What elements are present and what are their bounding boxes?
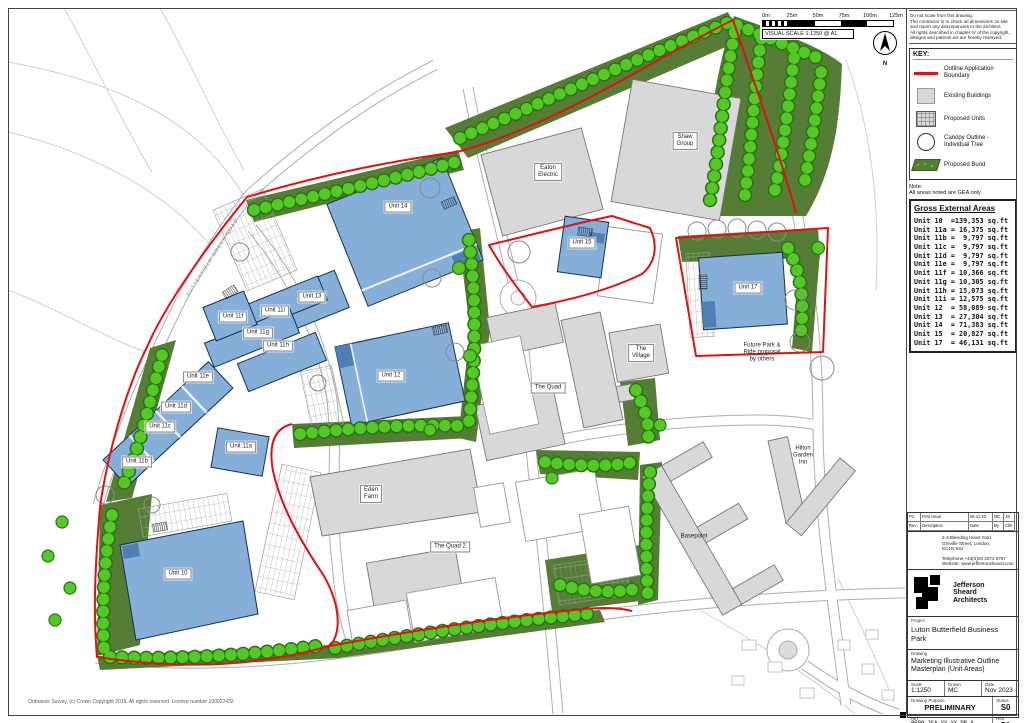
- drawing-title: Marketing Illustrative Outline Masterpla…: [908, 656, 1018, 681]
- rev-cell: MC: [993, 513, 1004, 522]
- areas-note-text: All areas noted are GEA only: [909, 190, 981, 196]
- key-item-label: Canopy Outline - Individual Tree: [944, 135, 989, 149]
- gea-row: Unit 13 = 27,304 sq.ft: [914, 313, 1012, 322]
- masterplan-map: [8, 8, 905, 714]
- revision-table: P1 First Issue 06.11.23 MC JS Rev Descri…: [908, 513, 1018, 532]
- key-item-existing: Existing Buildings: [913, 85, 1013, 108]
- date-cell: Date Nov 2023: [982, 681, 1018, 696]
- existing-building-swatch: [913, 88, 939, 104]
- rev-header-cell: Date: [969, 522, 993, 531]
- drawing-sheet: Unit 14 Unit 13 Unit 11i Unit 11f Unit 1…: [0, 0, 1024, 723]
- rev-cell: First Issue: [921, 513, 969, 522]
- key-item-tree: Canopy Outline - Individual Tree: [913, 131, 1013, 154]
- drawn-cell: Drawn MC: [945, 681, 982, 696]
- note-line: The contractor is to check all dimension…: [910, 19, 1016, 30]
- proposed-unit-swatch: [913, 111, 939, 127]
- tick-25: 25m: [787, 13, 798, 19]
- gea-row: Unit 11f = 10,366 sq.ft: [914, 269, 1012, 278]
- ref-rev-row: Ref 0689-JSA-XX-XX-DR-A-01220 Rev P1: [908, 715, 1018, 723]
- tick-125: 125m: [889, 13, 903, 19]
- gea-row: Unit 11d = 9,797 sq.ft: [914, 252, 1012, 261]
- drawn-value: MC: [945, 687, 981, 695]
- key-item-bund: Proposed Bund: [913, 154, 1013, 177]
- gea-row: Unit 11e = 9,797 sq.ft: [914, 260, 1012, 269]
- gea-title: Gross External Areas: [914, 204, 1012, 213]
- hilton-garden-inn-building: [768, 437, 855, 536]
- gea-row: Unit 11g = 10,305 sq.ft: [914, 278, 1012, 287]
- key-item-label: Proposed Units: [944, 116, 985, 123]
- gea-row: Unit 14 = 71,383 sq.ft: [914, 321, 1012, 330]
- gea-row: Unit 12 = 58,089 sq.ft: [914, 304, 1012, 313]
- key-item-boundary: Outline Application Boundary: [913, 62, 1013, 85]
- jefferson-sheard-logo-icon: [912, 575, 948, 611]
- unit-12-building: [335, 323, 465, 425]
- purpose-cell: Drawing Purpose PRELIMINARY: [908, 697, 993, 714]
- rev-cell: P1: [908, 513, 921, 522]
- gea-row: Unit 11c = 9,797 sq.ft: [914, 243, 1012, 252]
- scale-bar-blocks: [762, 20, 894, 27]
- address-line: EC1N 8SJ: [942, 546, 1014, 552]
- panel-divider: [906, 8, 907, 714]
- tick-0: 0m: [762, 13, 770, 19]
- north-arrow-icon: [872, 30, 898, 56]
- basepoint-building: [643, 442, 784, 616]
- tree-canopy-swatch: [913, 133, 939, 151]
- gea-row: Unit 17 = 46,131 sq.ft: [914, 339, 1012, 348]
- ref-cell: Ref 0689-JSA-XX-XX-DR-A-01220: [908, 715, 993, 723]
- key-item-label: Proposed Bund: [944, 162, 985, 169]
- gross-external-areas-table: Gross External Areas Unit 10 =139,353 sq…: [909, 199, 1017, 353]
- architect-name: Jefferson Sheard Architects: [953, 582, 987, 605]
- unit-11a-building: [211, 428, 269, 476]
- unit-17-building: [699, 252, 788, 330]
- unit-15-building: [557, 216, 608, 278]
- scale-drawn-date-row: Scale 1:1250 Drawn MC Date Nov 2023: [908, 681, 1018, 697]
- scale-value: 1:1250: [908, 687, 944, 695]
- areas-note: Note: All areas noted are GEA only: [909, 184, 1017, 196]
- os-copyright-text: Ordnance Survey, (c) Crown Copyright 201…: [28, 699, 234, 705]
- north-arrow: N: [870, 30, 900, 66]
- date-value: Nov 2023: [982, 687, 1018, 695]
- key-item-label: Existing Buildings: [944, 93, 991, 100]
- tick-75: 75m: [839, 13, 850, 19]
- tick-50: 50m: [813, 13, 824, 19]
- note-line: All rights described in chapter IV of th…: [910, 30, 1016, 41]
- scale-cell: Scale 1:1250: [908, 681, 945, 696]
- gea-row: Unit 11b = 9,797 sq.ft: [914, 234, 1012, 243]
- rev-header-cell: Rev: [908, 522, 921, 531]
- right-panel: Do not scale from this drawing. The cont…: [909, 10, 1017, 353]
- purpose-value: PRELIMINARY: [908, 703, 992, 713]
- gea-row: Unit 15 = 20,827 sq.ft: [914, 330, 1012, 339]
- purpose-status-row: Drawing Purpose PRELIMINARY Status S0: [908, 697, 1018, 715]
- key-legend: KEY: Outline Application Boundary Existi…: [909, 48, 1017, 180]
- title-block: P1 First Issue 06.11.23 MC JS Rev Descri…: [907, 512, 1019, 718]
- boundary-line-swatch: [913, 72, 939, 75]
- general-notes: Do not scale from this drawing. The cont…: [909, 10, 1017, 44]
- rev-cell: 06.11.23: [969, 513, 993, 522]
- rev-header-cell: Chk: [1004, 522, 1015, 531]
- status-cell: Status S0: [993, 697, 1018, 714]
- visual-scale-caption: VISUAL SCALE 1:1250 @ A1: [762, 29, 854, 39]
- architect-logo: Jefferson Sheard Architects: [908, 570, 1018, 617]
- key-title: KEY:: [913, 51, 1013, 60]
- rev-cell-box: Rev P1: [993, 715, 1018, 723]
- gea-row: Unit 11i = 12,575 sq.ft: [914, 295, 1012, 304]
- rev-cell: JS: [1004, 513, 1015, 522]
- project-name: Luton Butterfield Business Park: [908, 623, 1018, 650]
- architect-address: 2-3 Bleeding Heart Yard, Greville Street…: [908, 532, 1018, 570]
- rev-header-cell: By: [993, 522, 1004, 531]
- status-value: S0: [993, 703, 1018, 713]
- gea-row: Unit 10 =139,353 sq.ft: [914, 217, 1012, 226]
- north-label: N: [870, 61, 900, 67]
- scale-bar-ticks: 0m 25m 50m 75m 100m 125m: [762, 13, 908, 20]
- website-line: Website: www.jeffersonsheard.com: [942, 561, 1014, 567]
- rev-header-cell: Description: [921, 522, 969, 531]
- tick-100: 100m: [863, 13, 877, 19]
- gea-row: Unit 11a = 16,375 sq.ft: [914, 226, 1012, 235]
- key-item-label: Outline Application Boundary: [944, 66, 1013, 80]
- gea-row: Unit 11h = 15,073 sq.ft: [914, 287, 1012, 296]
- bund-swatch: [913, 159, 939, 171]
- key-item-proposed: Proposed Units: [913, 108, 1013, 131]
